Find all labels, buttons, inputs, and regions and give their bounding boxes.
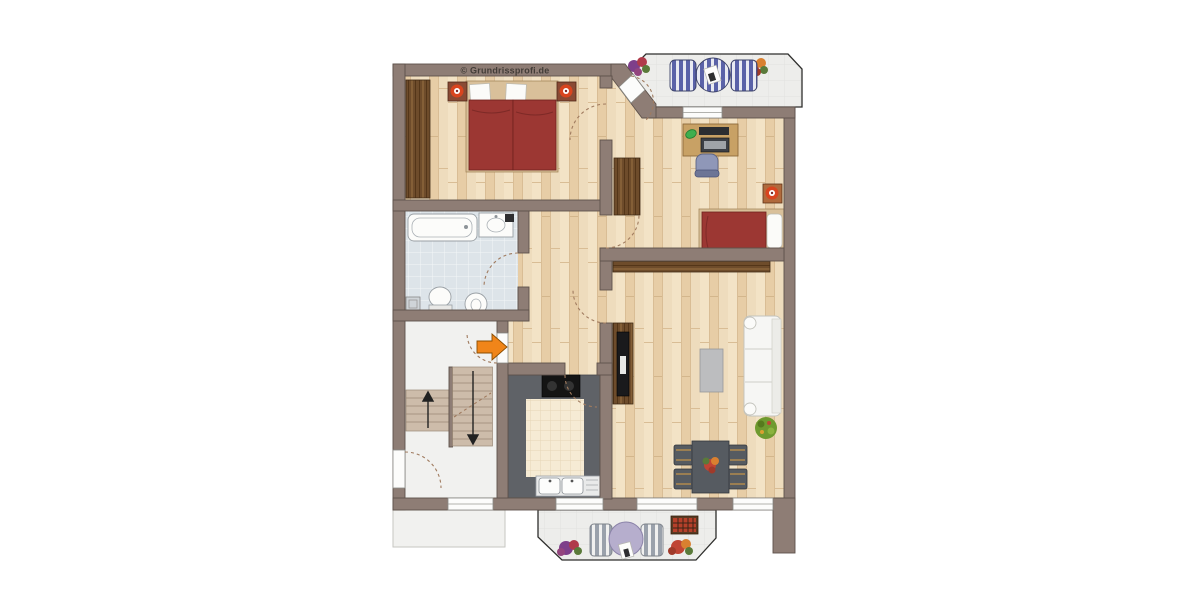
dining-chair-icon (674, 445, 693, 465)
window-icon (637, 498, 697, 510)
dining-chair-icon (728, 469, 747, 489)
stair-divider (449, 367, 453, 447)
plant-icon (755, 417, 777, 439)
window-icon (683, 107, 722, 118)
window-icon (556, 498, 603, 510)
sofa-icon (744, 316, 781, 416)
floorplan-page: © Grundrissprofi.de (0, 0, 1200, 600)
window-icon (448, 498, 493, 510)
single-bed-icon (699, 209, 784, 253)
kitchen (508, 375, 600, 498)
bathtub-icon (408, 214, 477, 241)
office-living-wall (600, 248, 784, 261)
stove-icon (542, 375, 580, 397)
dining-chair-icon (674, 469, 693, 489)
sideboard-icon (613, 261, 770, 272)
dining-chair-icon (728, 445, 747, 465)
floorplan-canvas: © Grundrissprofi.de (0, 0, 1200, 600)
stairs-up-flight (406, 390, 449, 431)
nightstand-lamp-icon (448, 82, 467, 101)
building-entry-door (393, 450, 405, 488)
balcony-table-icon (696, 58, 730, 92)
hall-wardrobe-icon (614, 158, 640, 215)
wardrobe-icon (406, 80, 430, 198)
coffee-table-icon (700, 349, 723, 392)
bath-cabinet-icon (406, 297, 420, 311)
balcony-top (628, 54, 802, 107)
bath-shelf-icon (505, 214, 514, 222)
grill-mat-icon (671, 516, 698, 534)
window-icon (733, 498, 773, 510)
double-bed-icon (466, 81, 558, 172)
nightstand-lamp-icon (557, 82, 576, 101)
tv-cabinet-icon (613, 323, 633, 404)
terrace-bottom-left (393, 510, 505, 547)
copyright-text: © Grundrissprofi.de (461, 66, 550, 76)
kitchen-floor (526, 399, 584, 477)
kitchen-sink-icon (536, 476, 600, 496)
desk-chair-icon (695, 154, 719, 177)
desk-icon (683, 124, 738, 156)
balcony-bottom (538, 510, 716, 560)
stairs-down-flight (453, 367, 493, 446)
nightstand-lamp-icon (763, 184, 782, 203)
corner-pier (773, 498, 795, 553)
